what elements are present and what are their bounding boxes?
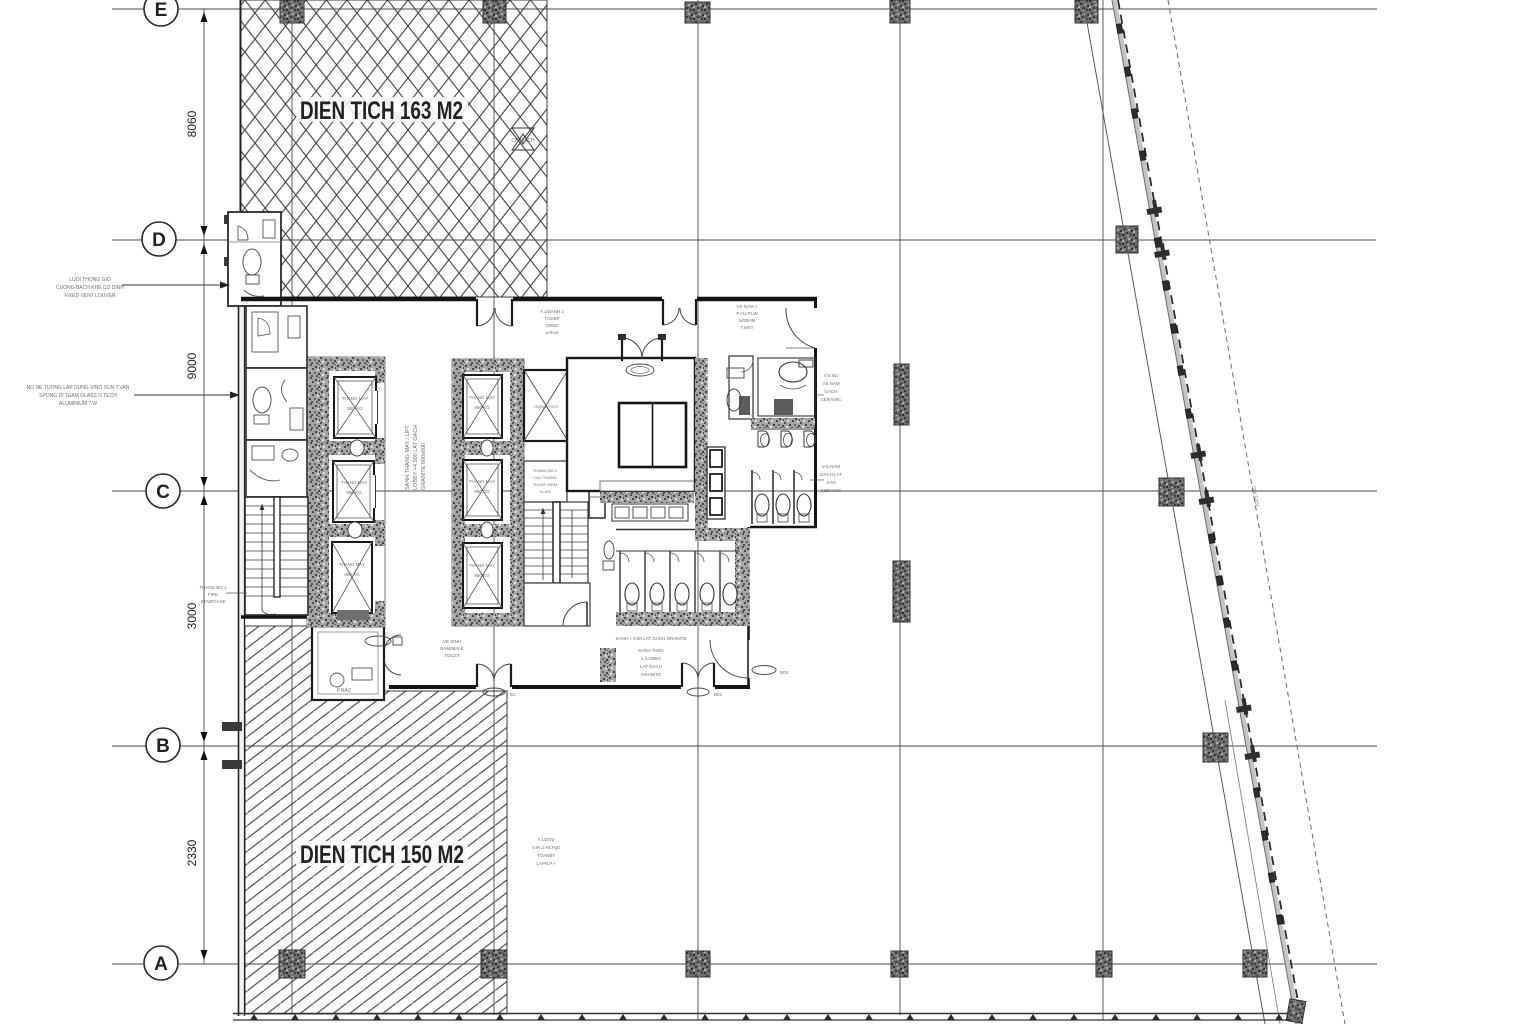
svg-text:THANG BO 1: THANG BO 1 bbox=[199, 585, 227, 590]
svg-text:CH-GACH: CH-GACH bbox=[511, 138, 535, 144]
svg-text:B03: B03 bbox=[780, 670, 789, 675]
svg-text:T.MST: T.MST bbox=[741, 325, 754, 330]
svg-text:SAN: SAN bbox=[826, 480, 835, 485]
svg-text:LUOI THONG GIO: LUOI THONG GIO bbox=[69, 277, 111, 283]
svg-text:C: C bbox=[156, 482, 170, 503]
svg-text:SANH TANG: SANH TANG bbox=[638, 648, 664, 653]
svg-text:THOAT HIEM: THOAT HIEM bbox=[533, 482, 557, 487]
svg-text:+4.500: +4.500 bbox=[539, 489, 552, 494]
svg-text:THANG MAY: THANG MAY bbox=[342, 396, 368, 401]
svg-text:THANG MAY: THANG MAY bbox=[469, 563, 495, 568]
svg-text:GIENG TROI: GIENG TROI bbox=[534, 404, 557, 409]
svg-text:850 KG: 850 KG bbox=[346, 490, 362, 495]
svg-text:FIRE: FIRE bbox=[208, 592, 218, 597]
svg-text:2330: 2330 bbox=[185, 839, 199, 866]
svg-text:GRANITE 600x600: GRANITE 600x600 bbox=[421, 443, 427, 490]
svg-text:1 /LOBBY: 1 /LOBBY bbox=[641, 656, 661, 661]
svg-text:a.Root: a.Root bbox=[545, 330, 559, 335]
svg-text:TOANBT: TOANBT bbox=[537, 853, 555, 858]
svg-text:Y.1/SANH 2: Y.1/SANH 2 bbox=[540, 309, 564, 314]
svg-text:B02: B02 bbox=[714, 692, 723, 697]
svg-text:ALUMINIUM T.W: ALUMINIUM T.W bbox=[59, 401, 97, 407]
svg-text:LAPN.P.+: LAPN.P.+ bbox=[536, 861, 556, 866]
svg-text:850 KG: 850 KG bbox=[474, 573, 490, 578]
svg-text:B: B bbox=[156, 736, 170, 757]
svg-text:P.AU.P.LW: P.AU.P.LW bbox=[736, 311, 758, 316]
svg-text:SPONG DI TEAM GLASS D.TECH: SPONG DI TEAM GLASS D.TECH bbox=[39, 393, 117, 399]
svg-text:TCDBP: TCDBP bbox=[544, 316, 559, 321]
svg-text:NGBHM: NGBHM bbox=[739, 318, 756, 323]
svg-text:V.S.NU: V.S.NU bbox=[824, 373, 839, 378]
svg-text:B1: B1 bbox=[510, 692, 516, 697]
svg-text:850 KG: 850 KG bbox=[347, 406, 363, 411]
svg-text:9000: 9000 bbox=[185, 352, 199, 379]
svg-text:NAM/MALE: NAM/MALE bbox=[440, 646, 464, 651]
svg-text:THANG MAY: THANG MAY bbox=[339, 562, 365, 567]
svg-text:SANH THANG MAY / LIFT: SANH THANG MAY / LIFT bbox=[405, 425, 411, 490]
svg-text:GRANITE: GRANITE bbox=[641, 672, 661, 677]
svg-text:850 KG: 850 KG bbox=[474, 489, 490, 494]
svg-text:FIXED VENT LOUVER: FIXED VENT LOUVER bbox=[64, 293, 116, 299]
svg-text:CAU THANG: CAU THANG bbox=[533, 475, 556, 480]
svg-text:VS NAM 1: VS NAM 1 bbox=[736, 304, 758, 309]
svg-text:DIEN TICH 150 M2: DIEN TICH 150 M2 bbox=[300, 841, 464, 869]
svg-text:CUONG BACH KHE CO DINH: CUONG BACH KHE CO DINH bbox=[56, 285, 124, 291]
svg-text:V.S.NAM: V.S.NAM bbox=[822, 464, 840, 469]
svg-text:E: E bbox=[155, 0, 168, 21]
svg-text:3000: 3000 bbox=[185, 602, 199, 629]
svg-text:THANG MAY: THANG MAY bbox=[469, 479, 495, 484]
svg-text:Y.1/Z/Vp: Y.1/Z/Vp bbox=[538, 837, 555, 842]
svg-text:GACH LAT: GACH LAT bbox=[820, 472, 842, 477]
svg-text:SANH + 0.00 LAT GACH GRANITE: SANH + 0.00 LAT GACH GRANITE bbox=[616, 636, 687, 641]
svg-text:LAT GACH: LAT GACH bbox=[640, 664, 662, 669]
svg-text:CERAMIC: CERAMIC bbox=[821, 488, 843, 493]
svg-text:8060: 8060 bbox=[185, 110, 199, 137]
svg-text:V.IN.2.NCPg0: V.IN.2.NCPg0 bbox=[532, 845, 560, 850]
svg-text:THANG MAY: THANG MAY bbox=[341, 480, 367, 485]
svg-text:LOBBY +4.500 LAT GACH: LOBBY +4.500 LAT GACH bbox=[413, 425, 419, 490]
svg-text:GRND: GRND bbox=[545, 323, 559, 328]
svg-text:THANG MAY: THANG MAY bbox=[469, 395, 495, 400]
svg-text:VE SINH: VE SINH bbox=[443, 639, 461, 644]
svg-text:D: D bbox=[152, 230, 166, 251]
svg-text:STAIRCASE: STAIRCASE bbox=[200, 599, 225, 604]
svg-text:NO NE TUONG LAP DUNG VINO SUN: NO NE TUONG LAP DUNG VINO SUN T.VAN bbox=[27, 385, 130, 391]
svg-text:A: A bbox=[154, 954, 168, 975]
svg-text:850 KG: 850 KG bbox=[344, 572, 360, 577]
svg-text:850 KG: 850 KG bbox=[474, 405, 490, 410]
svg-text:TOILET: TOILET bbox=[444, 653, 460, 658]
svg-text:THANG BO 2: THANG BO 2 bbox=[533, 468, 558, 473]
svg-text:P.RAC: P.RAC bbox=[337, 688, 352, 694]
svg-text:GACH: GACH bbox=[824, 389, 837, 394]
svg-text:DIEN TICH 163 M2: DIEN TICH 163 M2 bbox=[300, 97, 463, 125]
svg-text:CERAMIC: CERAMIC bbox=[821, 397, 843, 402]
svg-text:VS.NAM: VS.NAM bbox=[822, 381, 840, 386]
